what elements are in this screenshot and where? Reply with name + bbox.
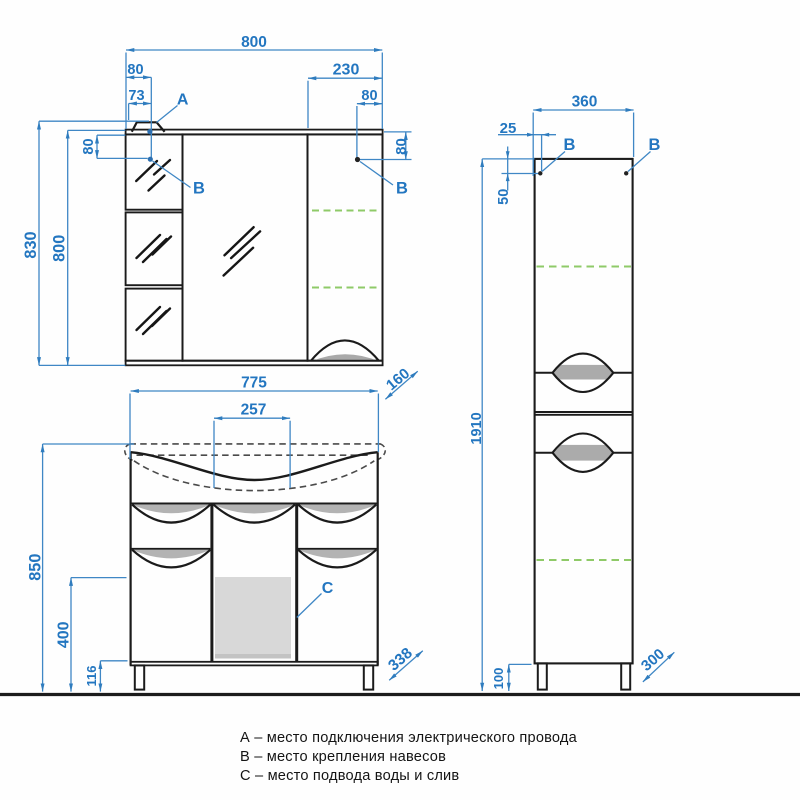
svg-text:B: B — [396, 180, 408, 198]
svg-text:230: 230 — [333, 62, 360, 79]
svg-text:100: 100 — [491, 668, 506, 690]
svg-text:116: 116 — [84, 666, 99, 687]
svg-text:1910: 1910 — [469, 412, 485, 444]
svg-text:А – место подключения электрич: А – место подключения электрического про… — [240, 730, 578, 746]
svg-text:830: 830 — [22, 231, 40, 258]
svg-text:50: 50 — [496, 189, 512, 205]
svg-text:775: 775 — [241, 375, 267, 392]
svg-text:360: 360 — [572, 94, 598, 111]
svg-text:C: C — [322, 580, 334, 597]
svg-text:B: B — [649, 136, 661, 154]
svg-text:С – место подвода воды и слив: С – место подвода воды и слив — [240, 768, 459, 784]
svg-text:800: 800 — [51, 235, 69, 262]
svg-text:A: A — [177, 92, 189, 109]
svg-text:B: B — [193, 180, 205, 198]
svg-text:80: 80 — [127, 62, 143, 78]
svg-text:80: 80 — [81, 138, 97, 154]
svg-text:73: 73 — [128, 88, 144, 104]
svg-text:850: 850 — [27, 554, 45, 581]
svg-text:В – место крепления навесов: В – место крепления навесов — [240, 749, 446, 765]
svg-text:25: 25 — [500, 120, 517, 137]
svg-text:257: 257 — [241, 402, 267, 419]
svg-text:800: 800 — [241, 34, 267, 51]
svg-text:80: 80 — [393, 138, 410, 155]
svg-text:80: 80 — [361, 88, 377, 104]
svg-text:B: B — [564, 136, 576, 154]
svg-text:400: 400 — [56, 621, 73, 648]
